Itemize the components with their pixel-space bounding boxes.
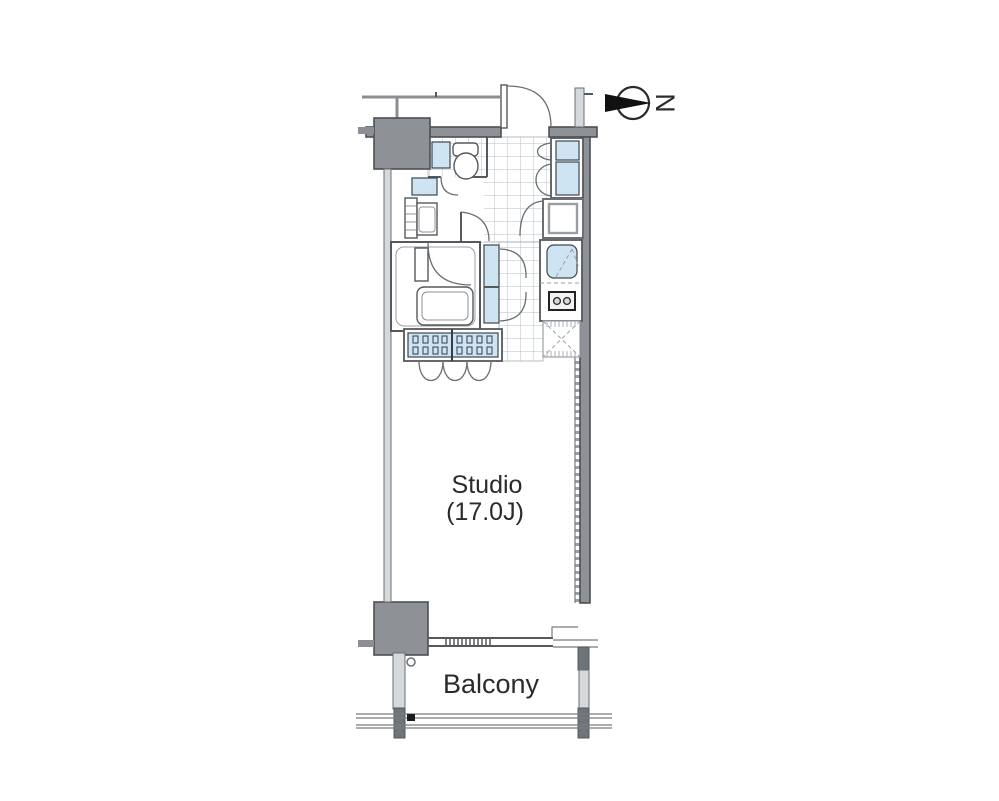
toilet-bowl: [454, 153, 478, 179]
drain-cap: [407, 658, 415, 666]
kitchen: [540, 240, 582, 321]
refrigerator-space: [543, 321, 580, 357]
vanity-counter: [405, 198, 417, 238]
toilet-tank: [432, 142, 450, 168]
studio-label: Studio: [452, 471, 523, 499]
unit-bath: [391, 242, 480, 331]
studio-area-label: (17.0J): [446, 498, 524, 526]
bath-counter: [415, 248, 428, 281]
left-wall: [384, 169, 391, 602]
floor-plan-canvas: N Studio (17.0J) Balcony: [0, 0, 999, 801]
washbasin: [412, 178, 437, 195]
balcony-label: Balcony: [443, 669, 540, 699]
compass-letter: N: [650, 93, 680, 113]
floor-plan-drawing: N Studio (17.0J) Balcony: [0, 0, 999, 801]
